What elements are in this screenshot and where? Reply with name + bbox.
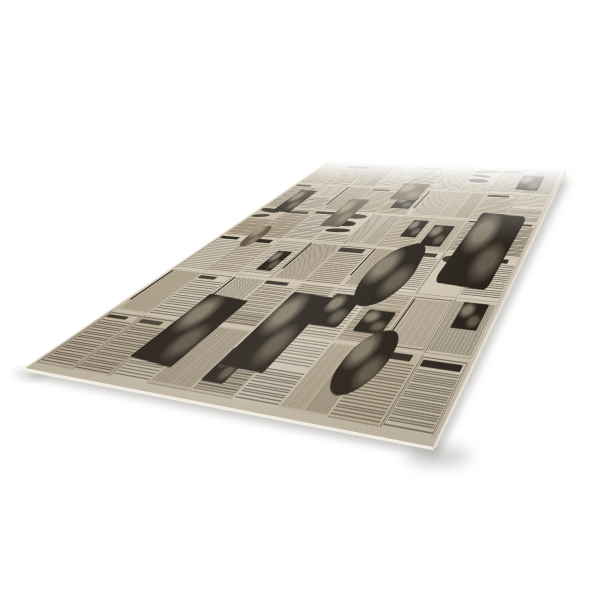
newsprint-photo-blocks — [25, 162, 565, 447]
newsprint-photo-block — [316, 329, 407, 398]
newsprint-photo-block — [337, 239, 433, 316]
newsprint-photo-block — [234, 225, 277, 247]
newsprint-photo-block — [515, 175, 546, 191]
newsprint-photo-block — [389, 183, 431, 200]
newspaper-print-sheet — [25, 162, 565, 447]
newsprint-photo-block — [272, 190, 318, 212]
newsprint-photo-block — [319, 199, 370, 227]
product-photo-stage — [0, 0, 600, 600]
newsprint-photo-block — [433, 212, 528, 290]
